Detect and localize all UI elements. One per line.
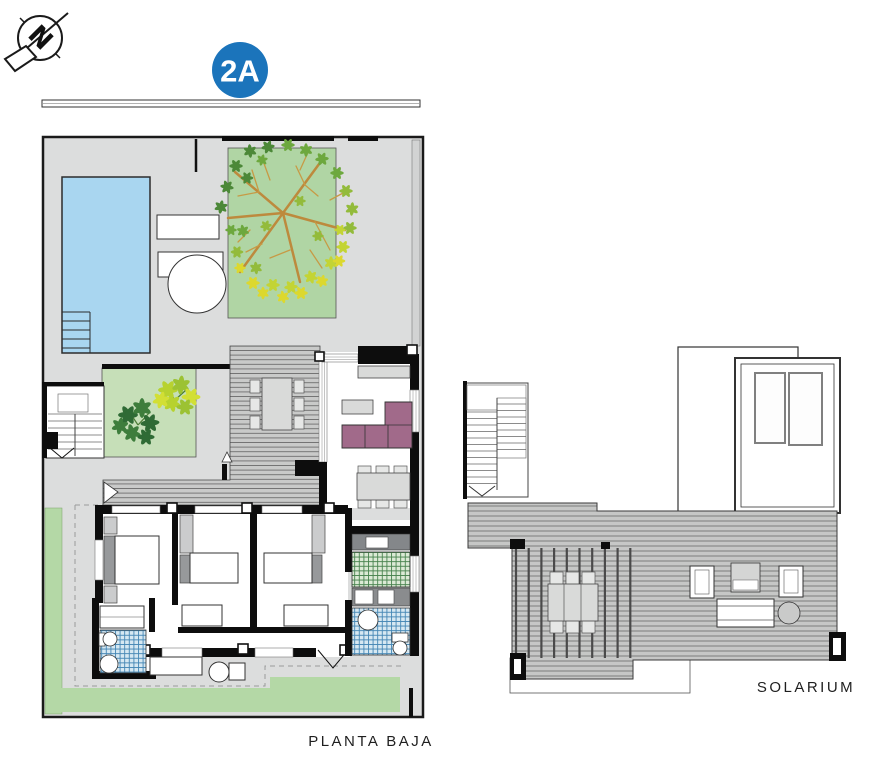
pool-water <box>62 177 150 353</box>
wardrobe <box>312 515 325 553</box>
appliance <box>378 590 394 604</box>
bed <box>190 553 238 583</box>
window <box>322 354 358 362</box>
indoor-dining-set <box>357 466 410 508</box>
exterior-stairs <box>42 382 104 458</box>
side-table <box>209 662 229 682</box>
armchair <box>690 566 714 598</box>
stool <box>229 663 245 680</box>
skylight-panel <box>755 373 785 443</box>
solarium-dining-table <box>548 584 598 621</box>
unit-badge-label: 2A <box>220 54 260 89</box>
toilet <box>103 632 117 646</box>
kitchen-counter <box>358 366 410 378</box>
pergola-post <box>601 542 610 549</box>
bench <box>150 657 202 675</box>
washbasin <box>358 610 378 630</box>
bathroom-2 <box>352 608 410 655</box>
garden-strip-west <box>45 508 62 714</box>
nightstand <box>104 586 117 603</box>
sun-lounger <box>157 215 219 239</box>
side-wall <box>412 140 420 346</box>
boundary-wall <box>222 136 334 141</box>
outdoor-dining-set <box>250 378 304 430</box>
solarium-dining-set <box>548 572 598 633</box>
window <box>410 556 419 592</box>
ground-floor-plan: PLANTA BAJA <box>42 136 434 750</box>
bed <box>264 553 312 583</box>
boundary-wall <box>348 136 378 141</box>
nightstand <box>104 517 117 534</box>
toilet <box>393 641 407 655</box>
appliance <box>355 590 373 604</box>
kitchen <box>348 526 412 606</box>
sofa <box>717 599 774 627</box>
indoor-dining-table <box>357 473 410 500</box>
north-arrow-icon: N <box>5 13 68 71</box>
outdoor-dining-table <box>262 378 292 430</box>
skylight-panel <box>789 373 822 445</box>
double-bed <box>115 536 159 584</box>
kitchen-sink <box>366 537 388 548</box>
headboard <box>104 536 115 584</box>
wardrobe <box>180 515 193 553</box>
stair-bulkhead <box>735 358 840 513</box>
desk <box>182 605 222 626</box>
scale-bar <box>42 100 420 107</box>
ground-floor-label: PLANTA BAJA <box>308 733 434 750</box>
solarium-stairs <box>463 381 528 499</box>
swimming-pool <box>62 177 150 353</box>
kitchen-wall <box>358 346 410 364</box>
solarium-plan: SOLARIUM <box>463 347 855 696</box>
roof-structures <box>678 347 840 513</box>
pergola-post <box>510 539 525 549</box>
washbasin <box>100 655 118 673</box>
armchair <box>779 566 803 597</box>
desk <box>284 605 328 626</box>
solarium-deck <box>468 503 846 693</box>
headboard <box>180 555 190 583</box>
garden-wall <box>102 364 240 369</box>
kitchen-tile-floor <box>352 552 410 587</box>
round-garden-table <box>168 255 226 313</box>
wall-stub <box>409 688 413 717</box>
floor-plan-sheet: N 2A <box>0 0 895 768</box>
solarium-label: SOLARIUM <box>757 679 855 696</box>
unit-badge: 2A <box>212 42 268 98</box>
sliding-glass-door[interactable] <box>319 356 327 462</box>
round-side-table <box>778 602 800 624</box>
coffee-table <box>342 400 373 414</box>
headboard <box>312 555 322 583</box>
